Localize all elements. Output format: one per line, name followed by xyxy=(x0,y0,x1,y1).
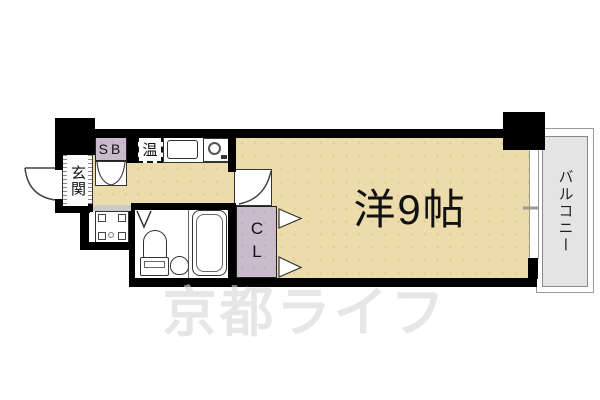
entrance-hatch-left xyxy=(63,155,67,206)
shoe-box: SB xyxy=(95,136,127,161)
closet-label: CL xyxy=(247,219,267,265)
water-heater: 温 xyxy=(137,136,163,163)
stove-control xyxy=(221,155,227,159)
water-heater-label: 温 xyxy=(142,139,157,160)
washer-corner xyxy=(118,214,126,222)
top-wall xyxy=(93,129,505,138)
kitchen-room-wall xyxy=(228,129,236,172)
shoe-box-doors xyxy=(95,161,127,186)
washer-corner xyxy=(98,232,106,240)
entrance-label: 玄関 xyxy=(67,165,88,197)
main-room-label: 洋9帖 xyxy=(290,178,530,234)
watermark: 京都ライフ xyxy=(135,268,475,347)
toilet-tank-lid xyxy=(144,261,165,268)
kitchen-bath-wall xyxy=(131,203,232,210)
entrance-area: 玄関 xyxy=(62,154,93,207)
washer-drain-icon xyxy=(108,232,114,238)
shoe-box-label: SB xyxy=(99,141,124,157)
washer-niche-opening xyxy=(93,205,131,211)
entrance-hatch-right xyxy=(88,155,92,206)
washer-corner xyxy=(98,214,106,222)
washer-bottom-wall xyxy=(80,242,133,250)
entrance-door-arc xyxy=(25,168,55,200)
balcony-label: バルコニー xyxy=(555,169,576,254)
washer-corner xyxy=(118,232,126,240)
balcony: バルコニー xyxy=(542,136,588,287)
left-wall-upper xyxy=(55,129,63,170)
main-room-label-text: 洋9帖 xyxy=(353,176,466,237)
pillar-top-right xyxy=(503,112,545,150)
sb-heater-wall xyxy=(127,129,138,163)
sliding-window xyxy=(529,150,539,259)
kitchen-sink xyxy=(167,140,198,159)
right-wall-lower xyxy=(528,258,538,279)
stove-burner-icon xyxy=(208,142,221,155)
room-door-panel xyxy=(234,169,272,206)
washer-pan xyxy=(95,211,129,243)
bathtub-inner xyxy=(196,214,223,272)
floor-plan: バルコニー 玄関 SB 温 xyxy=(0,0,600,400)
